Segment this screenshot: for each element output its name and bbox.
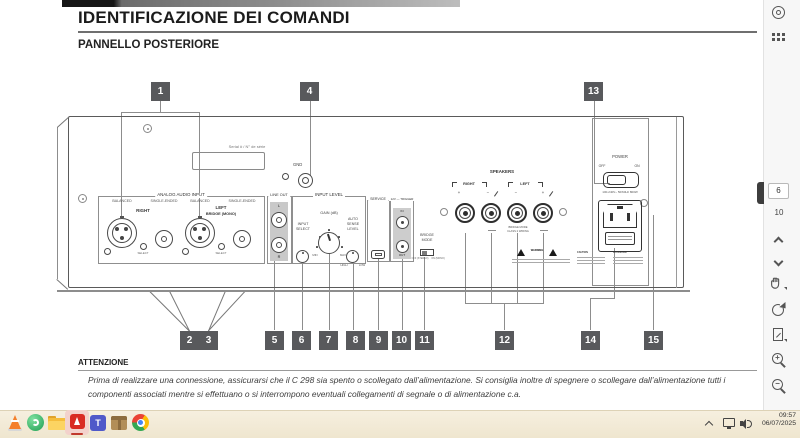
callout-12: 12 bbox=[495, 331, 514, 350]
top-toolbar-edge bbox=[62, 0, 460, 7]
attention-micro-label: ATTENTION bbox=[613, 252, 627, 255]
bridge-mode-label-2: MODE bbox=[422, 239, 433, 243]
callout-13: 13 bbox=[584, 82, 603, 101]
bridge-mono-label: BRIDGE (MONO) bbox=[206, 212, 236, 216]
xlr-pin bbox=[193, 227, 197, 231]
chassis-left-edge bbox=[57, 127, 58, 279]
pdf-page: IDENTIFICAZIONE DEI COMANDI PANNELLO POS… bbox=[0, 0, 763, 410]
callout-15: 15 bbox=[644, 331, 663, 350]
jack-hole bbox=[401, 245, 404, 248]
callout-5: 5 bbox=[265, 331, 284, 350]
line-out-r-label: R bbox=[278, 255, 281, 259]
terminal-plus: + bbox=[458, 191, 460, 196]
single-ended-label-left: SINGLE-ENDED bbox=[229, 200, 256, 204]
zoom-out-icon[interactable]: − bbox=[771, 378, 789, 396]
input-level-label: INPUT LEVEL bbox=[313, 193, 345, 198]
badge-icon[interactable] bbox=[769, 4, 789, 24]
micro-text-line bbox=[577, 257, 605, 258]
bracket bbox=[452, 182, 457, 187]
bridge-off-label: OFF (STEREO) bbox=[412, 258, 429, 261]
high-label: HIGH bbox=[341, 264, 348, 267]
dash bbox=[540, 230, 548, 231]
warning-label: WARNING bbox=[531, 250, 544, 253]
xlr-pin bbox=[202, 227, 206, 231]
callout-11: 11 bbox=[415, 331, 434, 350]
knob-indicator bbox=[352, 252, 354, 254]
micro-text-line bbox=[512, 259, 570, 260]
usb-inner bbox=[375, 253, 382, 256]
callout-line bbox=[590, 298, 591, 330]
speakers-label: SPEAKERS bbox=[490, 170, 514, 175]
micro-text-line bbox=[512, 262, 570, 263]
callout-10: 10 bbox=[392, 331, 411, 350]
screw bbox=[440, 208, 448, 216]
bracket bbox=[482, 182, 487, 187]
serial-plate bbox=[192, 152, 265, 170]
service-label: SERVICE bbox=[368, 198, 388, 202]
ac-pin-slot bbox=[617, 206, 623, 209]
hand-glyph bbox=[769, 276, 783, 290]
page-number-input[interactable]: 6 bbox=[768, 183, 789, 199]
callout-6: 6 bbox=[292, 331, 311, 350]
trigger-out-label: OUT bbox=[399, 254, 405, 257]
callout-8: 8 bbox=[346, 331, 365, 350]
apps-grid-icon[interactable] bbox=[769, 30, 789, 50]
power-label: POWER bbox=[612, 155, 628, 160]
callout-7: 7 bbox=[319, 331, 338, 350]
tray-clock[interactable]: 09:57 06/07/2025 bbox=[752, 412, 796, 428]
gain-tick bbox=[316, 246, 318, 248]
chassis-base bbox=[57, 290, 690, 292]
power-switch-rocker bbox=[607, 175, 626, 185]
title-rule bbox=[78, 31, 757, 33]
warning-triangle-icon bbox=[549, 249, 557, 256]
hand-tool-icon[interactable] bbox=[769, 276, 789, 296]
taskbar-chrome-icon[interactable] bbox=[131, 413, 151, 433]
xlr-pin bbox=[115, 227, 119, 231]
trigger-in-label: IN bbox=[401, 210, 404, 213]
micro-text-line bbox=[608, 236, 632, 237]
ac-pin-slot bbox=[610, 213, 613, 221]
line-out-label: LINE OUT bbox=[268, 193, 290, 197]
power-on-label: ON bbox=[634, 165, 639, 169]
rca-inner bbox=[239, 236, 245, 242]
left-channel-label: LEFT bbox=[216, 206, 227, 211]
gain-tick bbox=[328, 229, 330, 231]
jack-hole bbox=[401, 221, 404, 224]
gain-tick bbox=[341, 246, 343, 248]
rca-inner bbox=[276, 242, 282, 248]
attention-rule bbox=[78, 370, 757, 371]
caution-micro-label: CAUTION bbox=[577, 252, 588, 255]
knob-indicator bbox=[302, 252, 304, 254]
micro-text-line bbox=[577, 260, 605, 261]
fit-page-icon[interactable] bbox=[769, 326, 789, 346]
speakers-right-label: RIGHT bbox=[463, 182, 475, 186]
active-app-underline bbox=[71, 433, 83, 435]
attention-heading: ATTENZIONE bbox=[78, 359, 129, 368]
speaker-post-core bbox=[515, 211, 520, 216]
auto-sense-label-3: LEVEL bbox=[347, 228, 358, 232]
gnd-label: GND bbox=[293, 163, 302, 168]
callout-line bbox=[121, 112, 200, 113]
power-off-label: OFF bbox=[599, 165, 606, 169]
trigger-label: 12V — TRIGGER bbox=[389, 198, 416, 201]
callout-line bbox=[149, 291, 190, 332]
bridge-mode-switch-knob bbox=[422, 251, 427, 255]
gnd-post-inner bbox=[302, 177, 309, 184]
terminal-minus: − bbox=[515, 191, 517, 196]
micro-text-line bbox=[613, 260, 643, 261]
balance-select-button-right bbox=[140, 243, 147, 250]
select-label-left: SELECT bbox=[216, 252, 227, 255]
xlr-pin bbox=[124, 227, 128, 231]
page-total: 10 bbox=[775, 209, 784, 218]
bracket bbox=[508, 182, 513, 187]
speaker-post-core bbox=[541, 211, 546, 216]
xlr-inner bbox=[112, 223, 132, 243]
warning-triangle-icon bbox=[517, 249, 525, 256]
callout-2: 2 bbox=[180, 331, 199, 350]
micro-text-line bbox=[608, 239, 632, 240]
callout-line bbox=[504, 303, 505, 330]
attention-body: Prima di realizzare una connessione, ass… bbox=[88, 374, 756, 401]
taskbar-vlc-icon[interactable] bbox=[5, 413, 25, 433]
zoom-in-icon[interactable]: + bbox=[771, 352, 789, 370]
taskbar-green-app-icon[interactable] bbox=[26, 413, 46, 433]
speakers-left-label: LEFT bbox=[520, 182, 530, 186]
callout-3: 3 bbox=[199, 331, 218, 350]
balanced-label-left: BALANCED bbox=[190, 200, 209, 204]
callout-line bbox=[169, 291, 190, 332]
balanced-label-right: BALANCED bbox=[112, 200, 131, 204]
terminal-plus: + bbox=[542, 191, 544, 196]
speaker-post-core bbox=[489, 211, 494, 216]
page-number-value: 6 bbox=[776, 186, 780, 195]
tray-display-icon[interactable] bbox=[723, 418, 736, 430]
screw bbox=[282, 173, 289, 180]
chassis-seam bbox=[676, 117, 677, 288]
taskbar-teams-icon[interactable]: T bbox=[89, 413, 109, 433]
tray-time: 09:57 bbox=[752, 412, 796, 420]
xlr-pin bbox=[198, 236, 202, 240]
gain-min-label: MIN bbox=[312, 254, 317, 257]
micro-text-line bbox=[613, 263, 643, 264]
taskbar-acrobat-icon[interactable] bbox=[65, 410, 89, 435]
ground-lug bbox=[182, 248, 189, 255]
xlr-inner bbox=[190, 223, 210, 243]
line-out-l-label: L bbox=[278, 204, 280, 208]
speaker-post-core bbox=[463, 211, 468, 216]
callout-1: 1 bbox=[151, 82, 170, 101]
callout-line bbox=[208, 290, 246, 331]
class2-wiring-label: CLASS 2 WIRING bbox=[507, 231, 529, 234]
power-rating-label: 100-240V~ 50/60Hz 800W bbox=[602, 191, 637, 194]
screw bbox=[559, 208, 567, 216]
ac-pin-slot bbox=[627, 213, 630, 221]
bracket bbox=[538, 182, 543, 187]
callout-14: 14 bbox=[581, 331, 600, 350]
select-label-right: SELECT bbox=[138, 252, 149, 255]
micro-text-line bbox=[577, 263, 605, 264]
right-channel-label: RIGHT bbox=[136, 209, 150, 214]
page-title: IDENTIFICAZIONE DEI COMANDI bbox=[78, 9, 350, 28]
terminal-minus: − bbox=[487, 191, 489, 196]
low-label: LOW bbox=[359, 264, 365, 267]
callout-line bbox=[160, 100, 161, 112]
rotate-icon[interactable] bbox=[769, 301, 789, 321]
chassis-edge bbox=[56, 279, 68, 290]
taskbar-package-icon[interactable] bbox=[110, 413, 130, 433]
taskbar-file-explorer-icon[interactable] bbox=[47, 413, 67, 433]
micro-text-line bbox=[613, 257, 643, 258]
balance-select-button-left bbox=[218, 243, 225, 250]
callout-line bbox=[208, 291, 226, 332]
page-subtitle: PANNELLO POSTERIORE bbox=[78, 39, 219, 52]
callout-9: 9 bbox=[369, 331, 388, 350]
pdf-tools-sidebar bbox=[763, 0, 800, 410]
input-select-label-2: SELECT bbox=[296, 228, 310, 232]
screw-dot bbox=[147, 128, 149, 130]
single-ended-label-right: SINGLE-ENDED bbox=[151, 200, 178, 204]
dash bbox=[488, 230, 496, 231]
bridge-on-label: ON (MONO) bbox=[431, 258, 444, 261]
callout-line bbox=[590, 298, 615, 299]
panel-handle[interactable] bbox=[757, 182, 764, 204]
tray-date: 06/07/2025 bbox=[752, 420, 796, 428]
analog-audio-input-label: ANALOG AUDIO INPUT bbox=[155, 193, 207, 198]
rca-inner bbox=[161, 236, 167, 242]
rca-inner bbox=[276, 217, 282, 223]
serial-label: Serial # / N° de série bbox=[229, 145, 266, 149]
gain-label: GAIN (dB) bbox=[320, 211, 338, 215]
ground-lug bbox=[104, 248, 111, 255]
screw-dot bbox=[82, 198, 84, 200]
callout-4: 4 bbox=[300, 82, 319, 101]
xlr-pin bbox=[120, 236, 124, 240]
